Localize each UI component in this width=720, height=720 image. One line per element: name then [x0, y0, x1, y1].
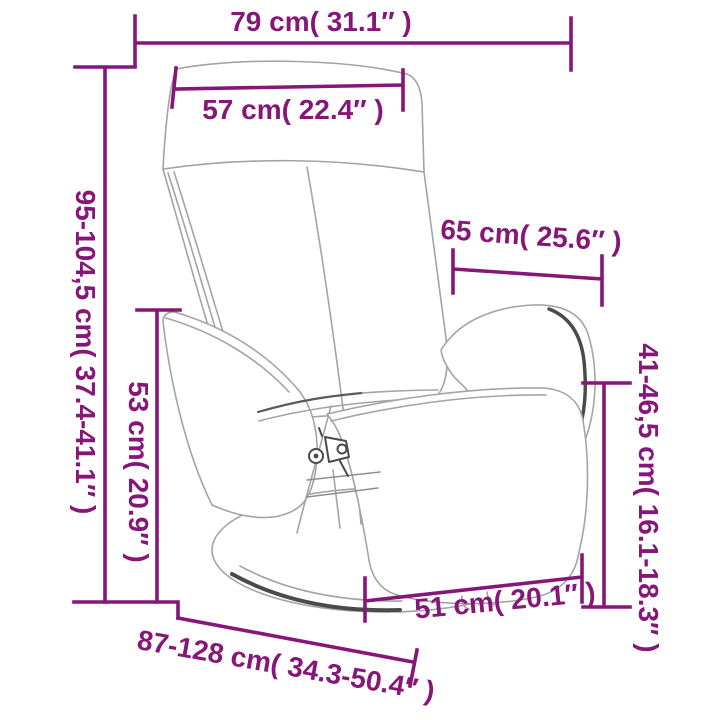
dimension-label-headrest-width: 57 cm( 22.4″ ) [143, 94, 443, 126]
dim-line-bottom-connector [74, 602, 178, 618]
dimension-label-footrest-height: 41-46,5 cm( 16.1-18.3″ ) [632, 333, 664, 663]
product-dimension-diagram: 79 cm( 31.1″ ) 57 cm( 22.4″ ) 95-104,5 c… [0, 0, 720, 720]
recliner-line-drawing [163, 61, 595, 612]
dimension-label-total-width: 79 cm( 31.1″ ) [103, 6, 539, 38]
dimension-label-total-height: 95-104,5 cm( 37.4-41.1″ ) [69, 157, 101, 547]
dim-line-seat-depth [453, 250, 602, 305]
dimension-label-armrest-height: 53 cm( 20.9″ ) [122, 347, 154, 597]
